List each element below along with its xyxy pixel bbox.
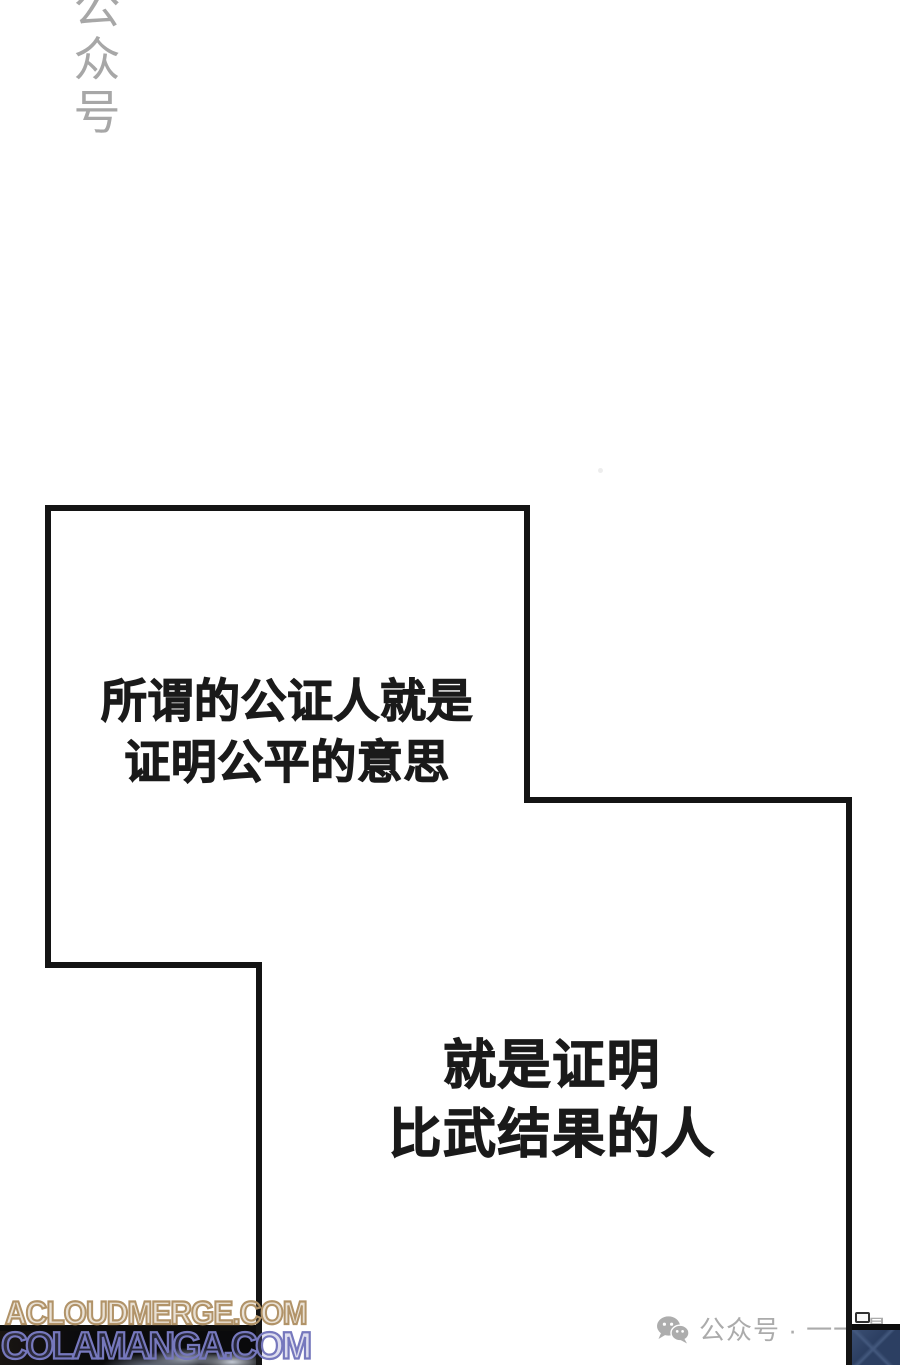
dialogue-line: 所谓的公证人就是 [67, 671, 507, 732]
vertical-watermark-char: 众 [74, 37, 121, 84]
comic-page: 公众号 · 一一漫 所谓的公证人就是 证明公平的意思 就是证明 比武结果的人 公… [0, 0, 900, 1365]
vertical-watermark: 公 众 号 [68, 0, 126, 137]
dialogue-line: 比武结果的人 [322, 1100, 782, 1169]
vertical-watermark-char: 公 [74, 0, 121, 31]
dialogue-text-1: 所谓的公证人就是 证明公平的意思 [67, 671, 507, 793]
dialogue-text-2: 就是证明 比武结果的人 [322, 1031, 782, 1169]
dialogue-line: 就是证明 [322, 1031, 782, 1100]
vertical-watermark-char: 号 [74, 90, 121, 137]
watermark-colamanga: COLAMANGA.COM [1, 1325, 310, 1365]
dialogue-line: 证明公平的意思 [67, 732, 507, 793]
